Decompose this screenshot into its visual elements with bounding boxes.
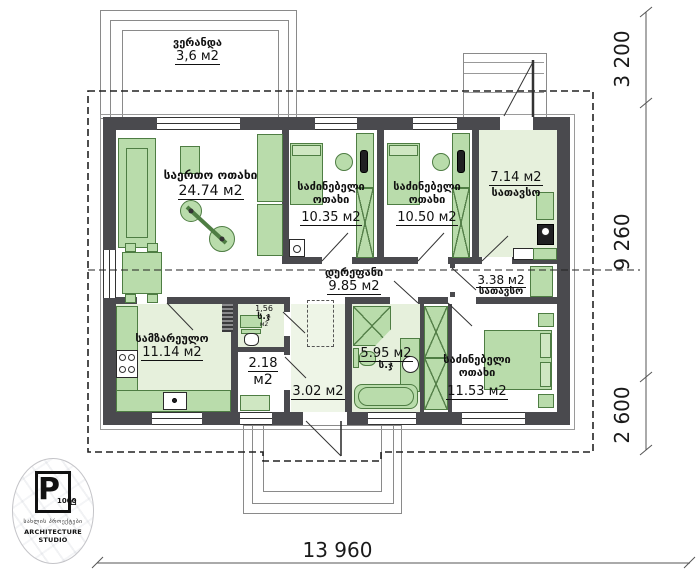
wc-unit: м2: [246, 322, 282, 328]
dimension-right-bottom: 2 600: [610, 375, 634, 455]
label-wc: 1,56 ს.ჯ м2: [246, 305, 282, 328]
corridor-area: 9.85 м2: [327, 279, 380, 295]
kitchen-area: 11.14 м2: [141, 345, 202, 361]
label-veranda: ვერანდა 3,6 м2: [130, 36, 265, 65]
veranda-name: ვერანდა: [130, 36, 265, 49]
label-bedroom2: საძინებელი ოთახი 10.50 м2: [384, 180, 470, 226]
label-hall: 2.18 м2: [240, 356, 286, 389]
label-kitchen: სამზარეულო 11.14 м2: [122, 332, 222, 361]
bedroom3-name: საძინებელი: [438, 353, 516, 366]
hall-unit: м2: [240, 372, 286, 389]
label-storage-top: 7.14 м2 სათავსო: [478, 170, 554, 199]
floor-plan-canvas: ვერანდა 3,6 м2 საერთო ოთახი 24.74 м2 საძ…: [0, 0, 700, 575]
corridor-name: დერეფანი: [308, 266, 400, 279]
dimension-line-bottom: [92, 557, 695, 568]
label-corridor: დერეფანი 9.85 м2: [308, 266, 400, 295]
label-bedroom1: საძინებელი ოთახი 10.35 м2: [288, 180, 374, 226]
bedroom2-area: 10.50 м2: [396, 210, 457, 226]
logo-tagline-georgian: სახლის პროექტები: [13, 519, 93, 525]
bathroom-name: ს.ჯ: [353, 361, 419, 372]
dimension-bottom: 13 960: [295, 538, 380, 562]
lamp-dot: [189, 209, 194, 214]
veranda-area: 3,6 м2: [175, 49, 220, 65]
storage-top-area: 7.14 м2: [489, 170, 542, 186]
living-name: საერთო ოთახი: [148, 168, 273, 183]
label-storage-small: 3.38 м2 სათავსო: [460, 274, 542, 297]
bedroom2-name: საძინებელი: [384, 180, 470, 193]
dimension-line-right: [640, 7, 652, 455]
label-vestibule: 3.02 м2: [290, 384, 346, 400]
label-living-room: საერთო ოთახი 24.74 м2: [148, 168, 273, 200]
kitchen-name: სამზარეულო: [122, 332, 222, 345]
label-bedroom3: საძინებელი ოთახი 11.53 м2: [438, 353, 516, 400]
dimension-right-middle: 9 260: [610, 202, 634, 282]
living-area: 24.74 м2: [178, 183, 244, 200]
bedroom3-area: 11.53 м2: [446, 384, 507, 400]
hall-area: 2.18: [248, 356, 279, 372]
storage-small-name: სათავსო: [460, 287, 542, 298]
bedroom2-name2: ოთახი: [384, 193, 470, 206]
label-bathroom: 5.95 м2 ს.ჯ: [353, 347, 419, 371]
house-icon: ⌂: [70, 495, 77, 508]
dimension-right-top: 3 200: [610, 19, 634, 99]
vestibule-area: 3.02 м2: [291, 384, 344, 400]
lamp-dot: [220, 237, 225, 242]
logo-tagline-english: ARCHITECTURE STUDIO: [13, 528, 93, 544]
bedroom3-name2: ოთახი: [438, 366, 516, 379]
bedroom1-name: საძინებელი: [288, 180, 374, 193]
storage-top-name: სათავსო: [478, 186, 554, 199]
architecture-studio-logo: P 1000 ⌂ სახლის პროექტები ARCHITECTURE S…: [12, 458, 94, 564]
bedroom1-name2: ოთახი: [288, 193, 374, 206]
bedroom1-area: 10.35 м2: [300, 210, 361, 226]
